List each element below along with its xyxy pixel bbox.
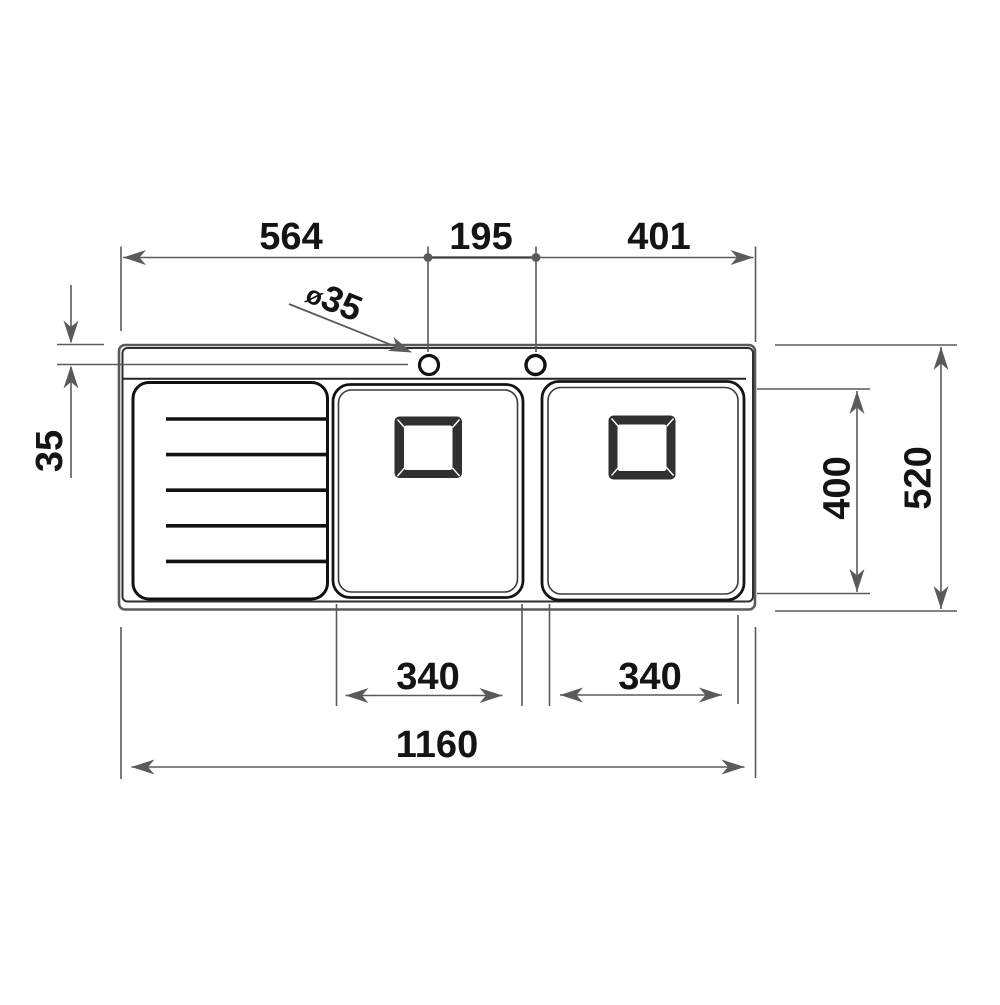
svg-text:340: 340 <box>618 656 681 698</box>
svg-text:35: 35 <box>29 430 71 472</box>
svg-text:195: 195 <box>449 216 512 258</box>
svg-text:564: 564 <box>259 216 322 258</box>
svg-text:401: 401 <box>627 216 690 258</box>
svg-text:340: 340 <box>396 656 459 698</box>
svg-text:ø35: ø35 <box>301 270 368 329</box>
svg-text:400: 400 <box>817 456 859 519</box>
svg-text:1160: 1160 <box>396 724 478 766</box>
svg-text:520: 520 <box>898 446 940 509</box>
